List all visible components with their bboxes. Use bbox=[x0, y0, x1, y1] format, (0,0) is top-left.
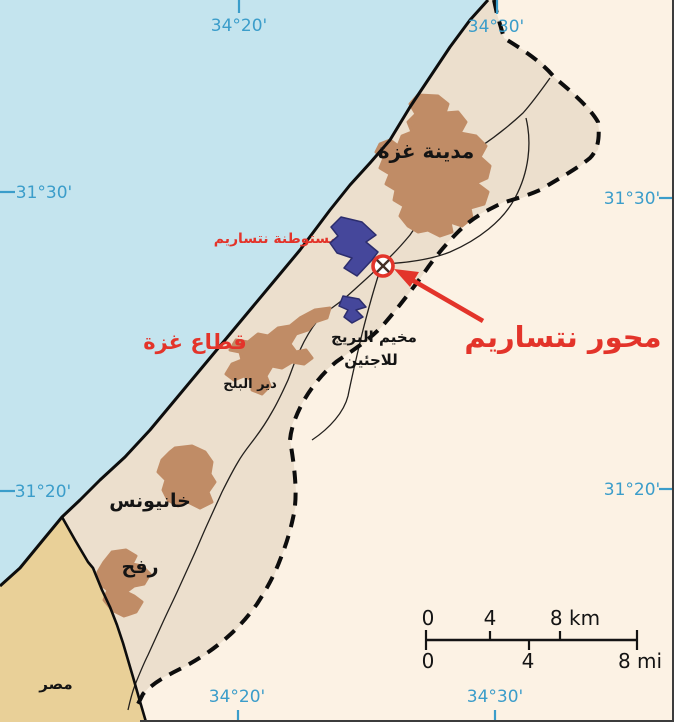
lat-label-right-north: 31°30' bbox=[604, 189, 660, 209]
scale-mi-4: 4 bbox=[522, 649, 535, 673]
netzarim-junction-marker bbox=[373, 256, 393, 276]
lon-label-bottom-east: 34°30' bbox=[467, 687, 523, 707]
lat-label-left-south: 31°20' bbox=[15, 482, 71, 502]
scale-mi-0: 0 bbox=[422, 649, 435, 673]
lon-label-top-east: 34°30' bbox=[468, 17, 524, 37]
egypt-label: مصر bbox=[38, 675, 72, 693]
lon-label-bottom-west: 34°20' bbox=[209, 687, 265, 707]
lat-label-right-south: 31°20' bbox=[604, 480, 660, 500]
scale-km-0: 0 bbox=[422, 606, 435, 630]
rafah-label: رفح bbox=[121, 556, 158, 578]
khan-yunis-label: خانيونس bbox=[109, 490, 191, 512]
bureij-camp-label-line2: للاجئين bbox=[344, 351, 398, 369]
gaza-city-label: مدينة غزة bbox=[378, 139, 475, 163]
netzarim-corridor-label: محور نتساريم bbox=[464, 320, 661, 354]
scale-mi-8: 8 mi bbox=[618, 649, 662, 673]
lon-label-top-west: 34°20' bbox=[211, 16, 267, 36]
scale-km-4: 4 bbox=[484, 606, 497, 630]
netzarim-settlement-label: مستوطنة نتساريم bbox=[214, 231, 338, 247]
gaza-strip-label: قطاع غزة bbox=[143, 330, 247, 354]
scale-km-8: 8 km bbox=[550, 606, 600, 630]
gaza-strip-map: مستوطنة نتساريم مدينة غزة قطاع غزة محور … bbox=[0, 0, 674, 722]
lat-label-left-north: 31°30' bbox=[16, 183, 72, 203]
bureij-camp-label-line1: مخيم البريج bbox=[331, 328, 417, 346]
deir-al-balah-label: دير البلح bbox=[223, 377, 277, 392]
